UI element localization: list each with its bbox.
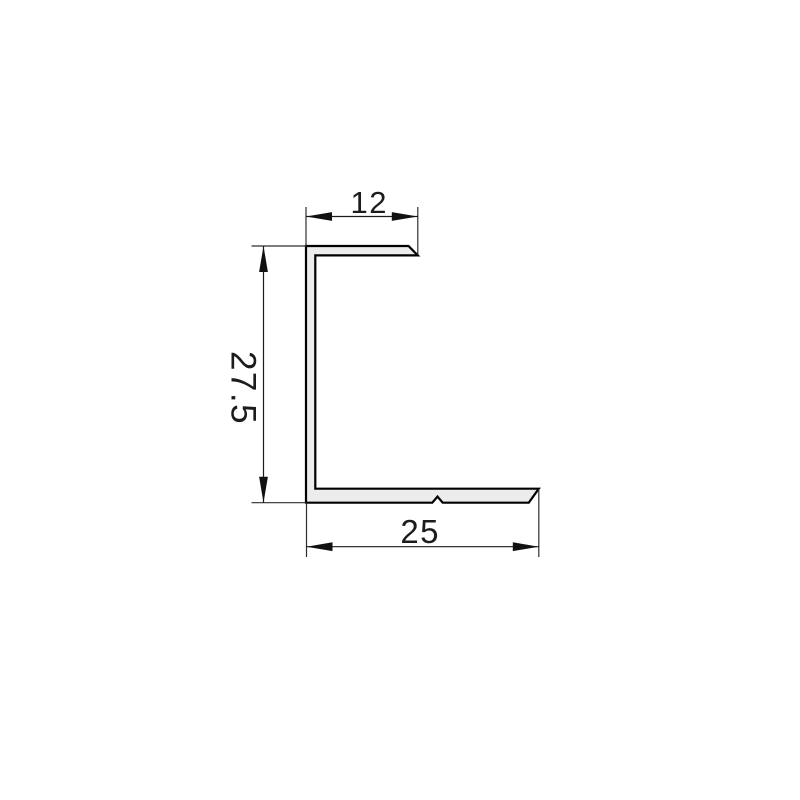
svg-text:27.5: 27.5 [224, 351, 263, 425]
svg-text:12: 12 [350, 185, 387, 220]
svg-text:25: 25 [400, 513, 440, 550]
